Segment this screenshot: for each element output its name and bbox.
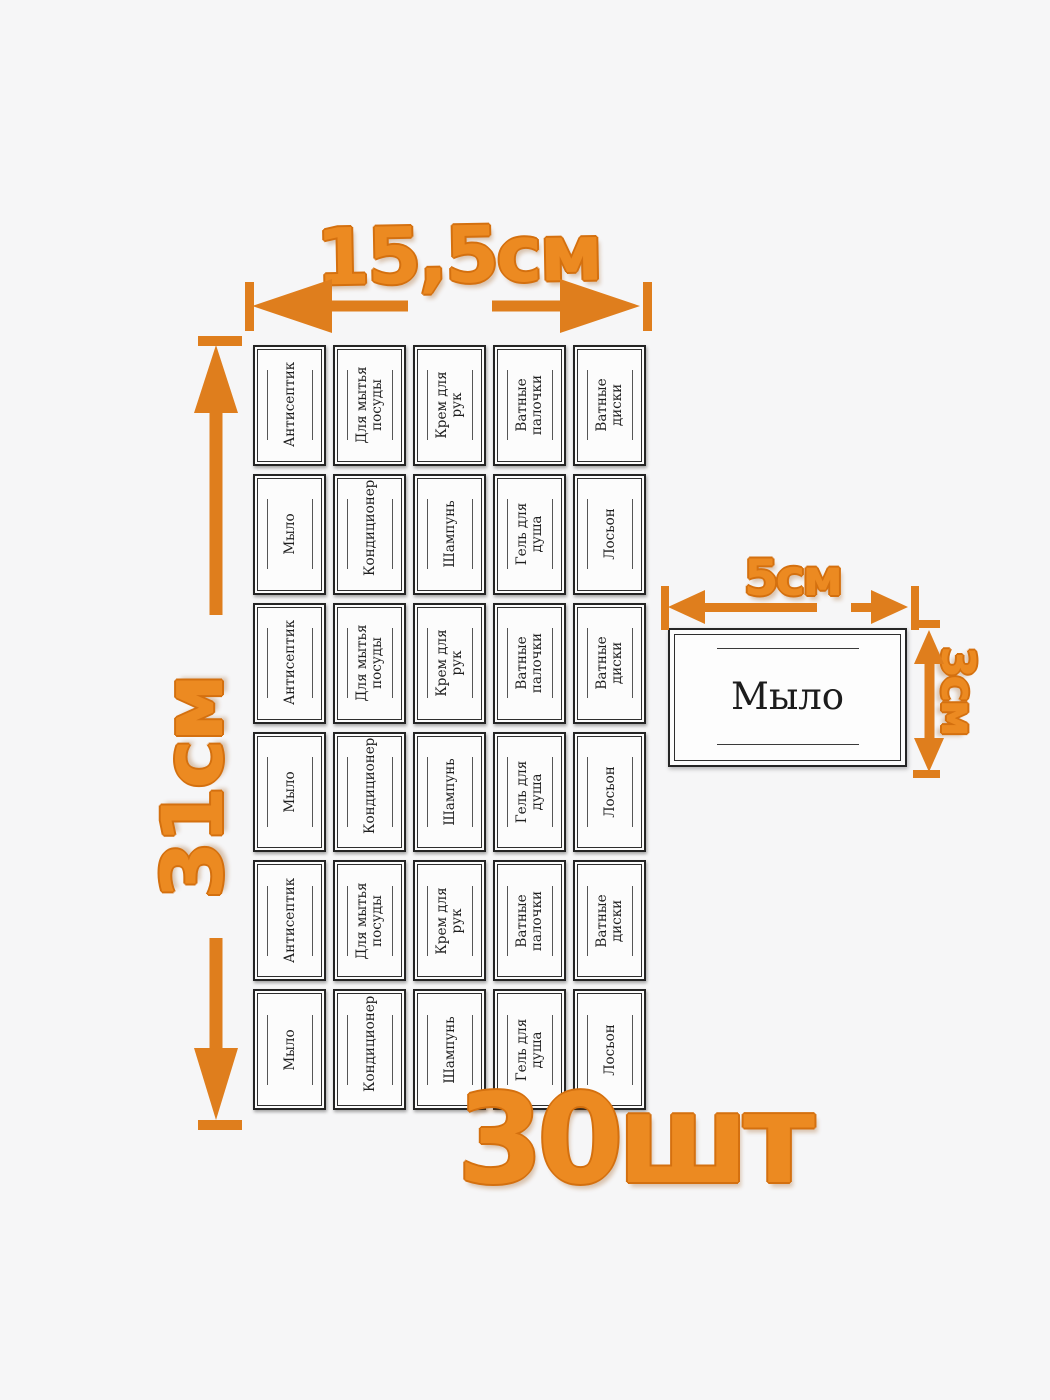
writing-line bbox=[311, 757, 312, 827]
writing-line bbox=[311, 1015, 312, 1085]
label-text: Гель для душа bbox=[515, 750, 544, 834]
label-cell-content: Ватные палочки bbox=[507, 869, 553, 973]
writing-line bbox=[392, 370, 393, 440]
label-cell: Мыло bbox=[253, 474, 326, 595]
label-cell-frame: Ватные диски bbox=[577, 864, 642, 977]
label-text: Антисептик bbox=[282, 879, 297, 963]
label-text: Ватные диски bbox=[595, 879, 624, 963]
writing-line bbox=[552, 370, 553, 440]
label-cell: Ватные палочки bbox=[493, 345, 566, 466]
writing-line bbox=[472, 628, 473, 698]
label-cell: Антисептик bbox=[253, 345, 326, 466]
label-text: Кондиционер bbox=[362, 750, 377, 834]
writing-line bbox=[632, 886, 633, 956]
label-text: Шампунь bbox=[442, 492, 457, 576]
label-cell-content: Крем для рук bbox=[427, 353, 473, 457]
label-cell-frame: Антисептик bbox=[257, 349, 322, 462]
label-cell: Ватные палочки bbox=[493, 603, 566, 724]
label-cell-content: Кондиционер bbox=[347, 998, 393, 1102]
label-cell: Кондиционер bbox=[333, 474, 406, 595]
writing-line bbox=[267, 628, 268, 698]
label-text: Кондиционер bbox=[362, 492, 377, 576]
label-cell: Ватные диски bbox=[573, 345, 646, 466]
label-cell-content: Гель для душа bbox=[507, 482, 553, 586]
label-text: Для мытья посуды bbox=[355, 879, 384, 963]
label-cell: Ватные диски bbox=[573, 603, 646, 724]
label-cell: Ватные палочки bbox=[493, 860, 566, 981]
writing-line bbox=[587, 628, 588, 698]
label-text: Мыло bbox=[282, 492, 297, 576]
label-cell-content: Мыло bbox=[267, 482, 313, 586]
label-cell-content: Шампунь bbox=[427, 482, 473, 586]
label-height-arrow bbox=[906, 612, 954, 780]
writing-line bbox=[311, 499, 312, 569]
writing-line bbox=[392, 628, 393, 698]
label-cell-frame: Гель для душа bbox=[497, 478, 562, 591]
label-text: Антисептик bbox=[282, 621, 297, 705]
count-label: 30шт bbox=[457, 1078, 809, 1202]
label-cell-content: Антисептик bbox=[267, 869, 313, 973]
label-cell-frame: Антисептик bbox=[257, 864, 322, 977]
writing-line bbox=[347, 757, 348, 827]
label-cell: Шампунь bbox=[413, 732, 486, 853]
label-cell-content: Ватные диски bbox=[587, 611, 633, 715]
writing-line bbox=[632, 628, 633, 698]
product-image: 15,5см 31см АнтисептикДля мытья посудыКр… bbox=[0, 0, 1050, 1400]
writing-line bbox=[631, 499, 632, 569]
label-cell-content: Кондиционер bbox=[347, 740, 393, 844]
label-cell: Крем для рук bbox=[413, 603, 486, 724]
label-text: Шампунь bbox=[442, 1008, 457, 1092]
writing-line bbox=[631, 757, 632, 827]
writing-line bbox=[507, 499, 508, 569]
writing-line bbox=[347, 1015, 348, 1085]
label-cell-frame: Ватные палочки bbox=[497, 607, 562, 720]
writing-line bbox=[267, 886, 268, 956]
label-cell-content: Крем для рук bbox=[427, 611, 473, 715]
writing-line bbox=[552, 628, 553, 698]
label-cell-frame: Шампунь bbox=[417, 478, 482, 591]
label-cell-frame: Крем для рук bbox=[417, 349, 482, 462]
label-cell: Ватные диски bbox=[573, 860, 646, 981]
label-cell-content: Мыло bbox=[267, 998, 313, 1102]
label-text: Для мытья посуды bbox=[355, 363, 384, 447]
writing-line bbox=[552, 499, 553, 569]
label-cell-frame: Для мытья посуды bbox=[337, 607, 402, 720]
writing-line bbox=[427, 370, 428, 440]
label-width-arrow bbox=[655, 581, 921, 633]
label-cell: Антисептик bbox=[253, 603, 326, 724]
label-text: Ватные палочки bbox=[515, 363, 544, 447]
label-cell-content: Ватные диски bbox=[587, 353, 633, 457]
sample-label-text: Мыло bbox=[731, 678, 844, 715]
writing-line bbox=[587, 499, 588, 569]
writing-line bbox=[427, 757, 428, 827]
writing-line bbox=[587, 886, 588, 956]
writing-line bbox=[391, 499, 392, 569]
label-cell-content: Мыло bbox=[267, 740, 313, 844]
label-cell-frame: Крем для рук bbox=[417, 607, 482, 720]
writing-line bbox=[427, 1015, 428, 1085]
label-text: Шампунь bbox=[442, 750, 457, 834]
writing-line bbox=[717, 648, 859, 649]
width-arrow bbox=[240, 276, 652, 338]
label-text: Крем для рук bbox=[435, 621, 464, 705]
label-cell-frame: Ватные диски bbox=[577, 349, 642, 462]
writing-line bbox=[347, 886, 348, 956]
writing-line bbox=[472, 370, 473, 440]
label-cell-frame: Кондиционер bbox=[337, 993, 402, 1106]
writing-line bbox=[267, 757, 268, 827]
label-cell-content: Ватные палочки bbox=[507, 611, 553, 715]
label-cell-content: Антисептик bbox=[267, 353, 313, 457]
writing-line bbox=[391, 757, 392, 827]
writing-line bbox=[717, 744, 859, 745]
writing-line bbox=[347, 499, 348, 569]
label-cell-frame: Ватные диски bbox=[577, 607, 642, 720]
writing-line bbox=[507, 370, 508, 440]
label-text: Ватные палочки bbox=[515, 879, 544, 963]
label-cell-content: Для мытья посуды bbox=[347, 611, 393, 715]
writing-line bbox=[267, 370, 268, 440]
writing-line bbox=[427, 628, 428, 698]
writing-line bbox=[587, 370, 588, 440]
label-cell: Мыло bbox=[253, 732, 326, 853]
writing-line bbox=[427, 499, 428, 569]
label-cell-frame: Антисептик bbox=[257, 607, 322, 720]
label-cell-frame: Для мытья посуды bbox=[337, 349, 402, 462]
writing-line bbox=[267, 1015, 268, 1085]
writing-line bbox=[507, 886, 508, 956]
sample-label-frame: Мыло bbox=[674, 634, 901, 761]
label-cell: Лосьон bbox=[573, 732, 646, 853]
writing-line bbox=[311, 886, 312, 956]
label-cell-frame: Мыло bbox=[257, 478, 322, 591]
label-cell: Мыло bbox=[253, 989, 326, 1110]
writing-line bbox=[427, 886, 428, 956]
label-cell-frame: Кондиционер bbox=[337, 736, 402, 849]
writing-line bbox=[267, 499, 268, 569]
label-cell-content: Ватные палочки bbox=[507, 353, 553, 457]
label-text: Мыло bbox=[282, 1008, 297, 1092]
label-cell: Гель для душа bbox=[493, 474, 566, 595]
writing-line bbox=[471, 757, 472, 827]
label-cell-content: Лосьон bbox=[587, 482, 633, 586]
label-cell: Для мытья посуды bbox=[333, 860, 406, 981]
height-arrow bbox=[188, 332, 244, 1132]
label-cell-frame: Для мытья посуды bbox=[337, 864, 402, 977]
label-cell: Шампунь bbox=[413, 474, 486, 595]
writing-line bbox=[632, 370, 633, 440]
label-text: Лосьон bbox=[602, 492, 617, 576]
label-cell-content: Антисептик bbox=[267, 611, 313, 715]
label-cell: Крем для рук bbox=[413, 345, 486, 466]
label-cell: Антисептик bbox=[253, 860, 326, 981]
label-text: Для мытья посуды bbox=[355, 621, 384, 705]
label-cell-frame: Мыло bbox=[257, 736, 322, 849]
writing-line bbox=[552, 757, 553, 827]
label-cell: Крем для рук bbox=[413, 860, 486, 981]
label-cell-content: Крем для рук bbox=[427, 869, 473, 973]
label-text: Ватные палочки bbox=[515, 621, 544, 705]
writing-line bbox=[552, 886, 553, 956]
label-text: Мыло bbox=[282, 750, 297, 834]
writing-line bbox=[507, 628, 508, 698]
label-cell-content: Для мытья посуды bbox=[347, 869, 393, 973]
writing-line bbox=[311, 370, 312, 440]
writing-line bbox=[471, 499, 472, 569]
label-cell-frame: Лосьон bbox=[577, 478, 642, 591]
label-sheet: АнтисептикДля мытья посудыКрем для рукВа… bbox=[253, 345, 646, 1110]
label-cell-frame: Мыло bbox=[257, 993, 322, 1106]
label-text: Ватные диски bbox=[595, 621, 624, 705]
label-cell: Для мытья посуды bbox=[333, 603, 406, 724]
label-cell: Кондиционер bbox=[333, 989, 406, 1110]
label-cell-content: Кондиционер bbox=[347, 482, 393, 586]
label-text: Ватные диски bbox=[595, 363, 624, 447]
label-cell-frame: Ватные палочки bbox=[497, 349, 562, 462]
writing-line bbox=[347, 370, 348, 440]
label-text: Антисептик bbox=[282, 363, 297, 447]
label-cell-frame: Шампунь bbox=[417, 736, 482, 849]
label-cell-content: Шампунь bbox=[427, 740, 473, 844]
writing-line bbox=[587, 757, 588, 827]
label-text: Крем для рук bbox=[435, 879, 464, 963]
writing-line bbox=[507, 757, 508, 827]
label-text: Гель для душа bbox=[515, 492, 544, 576]
writing-line bbox=[347, 628, 348, 698]
label-text: Лосьон bbox=[602, 750, 617, 834]
label-cell-frame: Крем для рук bbox=[417, 864, 482, 977]
label-cell: Кондиционер bbox=[333, 732, 406, 853]
writing-line bbox=[472, 886, 473, 956]
label-cell-frame: Гель для душа bbox=[497, 736, 562, 849]
label-cell-content: Гель для душа bbox=[507, 740, 553, 844]
label-text: Кондиционер bbox=[362, 1008, 377, 1092]
label-cell-frame: Ватные палочки bbox=[497, 864, 562, 977]
label-cell-content: Лосьон bbox=[587, 740, 633, 844]
label-cell: Лосьон bbox=[573, 474, 646, 595]
label-cell-frame: Кондиционер bbox=[337, 478, 402, 591]
label-cell-content: Для мытья посуды bbox=[347, 353, 393, 457]
label-cell: Для мытья посуды bbox=[333, 345, 406, 466]
writing-line bbox=[311, 628, 312, 698]
writing-line bbox=[392, 886, 393, 956]
label-cell-content: Ватные диски bbox=[587, 869, 633, 973]
label-cell-frame: Лосьон bbox=[577, 736, 642, 849]
label-text: Крем для рук bbox=[435, 363, 464, 447]
sample-label: Мыло bbox=[668, 628, 907, 767]
writing-line bbox=[391, 1015, 392, 1085]
label-cell: Гель для душа bbox=[493, 732, 566, 853]
